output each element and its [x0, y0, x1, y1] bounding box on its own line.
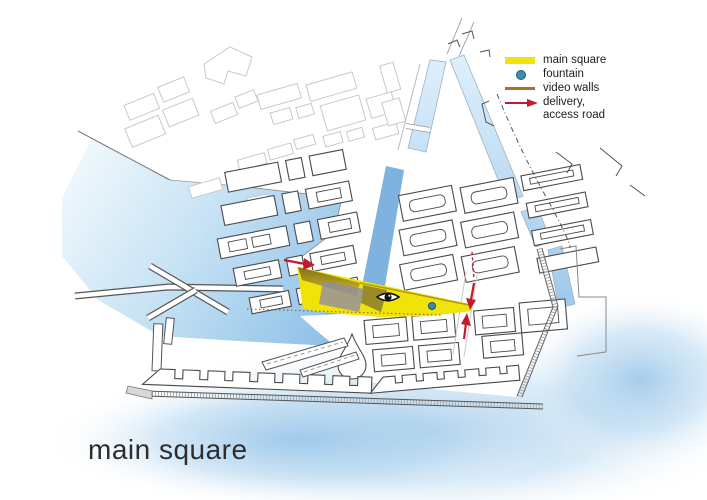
canal-a-left [398, 60, 446, 152]
legend-item-fountain: fountain [505, 68, 606, 81]
delivery-arrow-icon [505, 98, 539, 108]
fountain-swatch [516, 70, 526, 80]
legend: main square fountain video walls deliver… [505, 54, 606, 123]
legend-item-video-walls: video walls [505, 82, 606, 95]
video-walls-swatch [505, 87, 535, 90]
eye-icon [377, 293, 399, 301]
main-square-swatch [505, 57, 535, 64]
page-title: main square [88, 434, 248, 466]
legend-label: delivery, access road [543, 96, 605, 122]
legend-label: main square [543, 54, 606, 67]
legend-label: video walls [543, 82, 599, 95]
legend-item-delivery: delivery, access road [505, 96, 606, 122]
fountain-dot [429, 303, 436, 310]
legend-label: fountain [543, 68, 584, 81]
site-plan-page: main square fountain video walls deliver… [0, 0, 707, 500]
legend-item-main-square: main square [505, 54, 606, 67]
